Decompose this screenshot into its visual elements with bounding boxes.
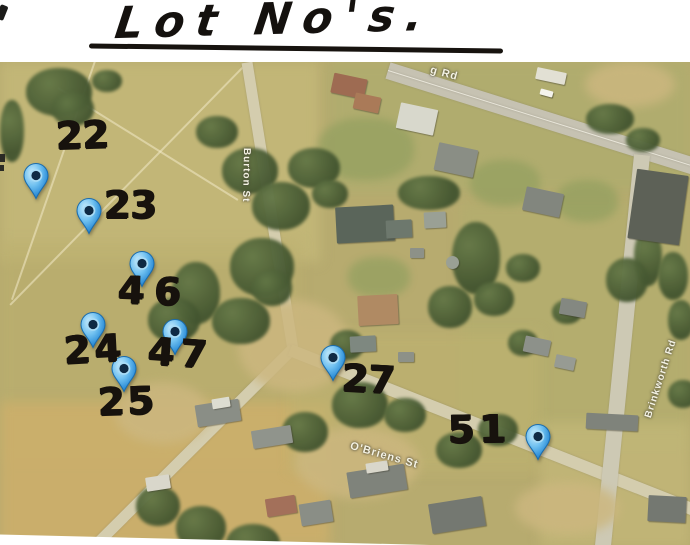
lawn-patch bbox=[556, 180, 618, 222]
lot-number-24: 24 bbox=[63, 328, 126, 369]
scan-speck bbox=[0, 165, 4, 171]
building-roof bbox=[424, 211, 447, 228]
lot-number-25: 25 bbox=[97, 381, 157, 421]
tree bbox=[474, 282, 514, 316]
building-roof bbox=[357, 294, 399, 326]
building-roof bbox=[446, 256, 459, 269]
building-roof bbox=[627, 169, 688, 246]
map-pin-icon bbox=[75, 197, 103, 235]
title-underline bbox=[89, 43, 503, 53]
map-pin-icon bbox=[524, 423, 552, 461]
tree bbox=[398, 176, 460, 210]
lot-number-47: 47 bbox=[147, 332, 214, 374]
tree bbox=[606, 258, 648, 302]
bare-ground bbox=[585, 62, 675, 107]
tree bbox=[506, 254, 540, 282]
map-marker-lot-23 bbox=[75, 197, 103, 235]
tree bbox=[252, 182, 310, 230]
scan-artifact bbox=[0, 4, 9, 21]
lot-number-51: 51 bbox=[448, 409, 512, 448]
tree bbox=[384, 398, 426, 432]
tree bbox=[668, 380, 690, 408]
scanned-page: Lot No's. g Rd Burton St O'Briens St Bri… bbox=[0, 0, 690, 545]
building-roof bbox=[350, 335, 377, 352]
building-roof bbox=[586, 413, 639, 432]
tree bbox=[626, 128, 660, 152]
tree bbox=[196, 116, 238, 148]
tree bbox=[92, 70, 122, 92]
map-marker-lot-51 bbox=[524, 423, 552, 461]
tree bbox=[586, 104, 634, 134]
lawn-patch bbox=[348, 257, 410, 297]
tree bbox=[668, 300, 690, 340]
tree bbox=[0, 100, 24, 162]
building-roof bbox=[428, 496, 486, 534]
road-label-burton-st: Burton St bbox=[240, 148, 252, 203]
scan-speck bbox=[0, 154, 5, 162]
lot-number-22: 22 bbox=[55, 115, 109, 155]
building-roof bbox=[386, 219, 413, 238]
building-roof bbox=[398, 352, 414, 362]
map-marker-lot-22 bbox=[22, 162, 50, 200]
map-pin-icon bbox=[22, 162, 50, 200]
page-title: Lot No's. bbox=[112, 0, 437, 49]
lot-number-46: 46 bbox=[117, 271, 191, 312]
bare-ground bbox=[515, 482, 620, 534]
tree bbox=[428, 286, 472, 328]
lot-number-23: 23 bbox=[104, 186, 157, 224]
building-roof bbox=[410, 248, 424, 258]
aerial-map: g Rd Burton St O'Briens St Brinkworth Rd bbox=[0, 62, 690, 545]
lot-number-27: 27 bbox=[341, 359, 396, 400]
tree bbox=[136, 486, 180, 526]
tree bbox=[658, 252, 688, 300]
tree bbox=[212, 298, 270, 344]
building-roof bbox=[647, 495, 686, 523]
tree bbox=[312, 180, 348, 208]
tree bbox=[252, 270, 292, 306]
